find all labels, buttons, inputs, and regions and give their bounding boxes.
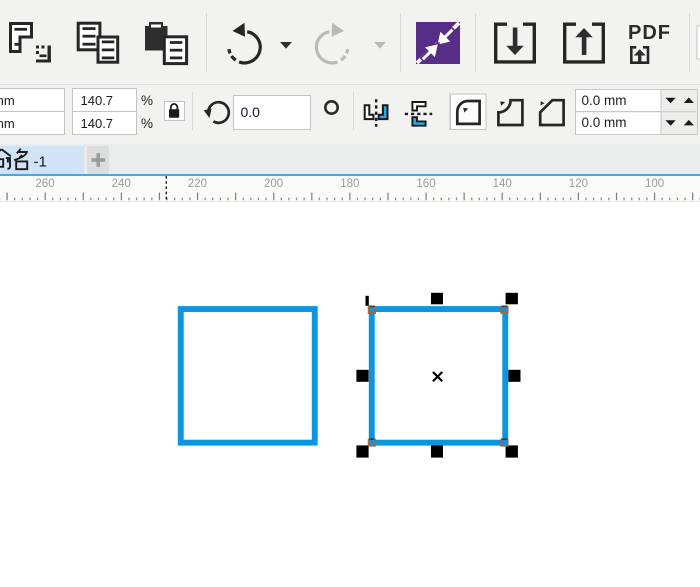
svg-text:-1: -1 (34, 153, 47, 170)
svg-text:PDF: PDF (628, 22, 671, 44)
